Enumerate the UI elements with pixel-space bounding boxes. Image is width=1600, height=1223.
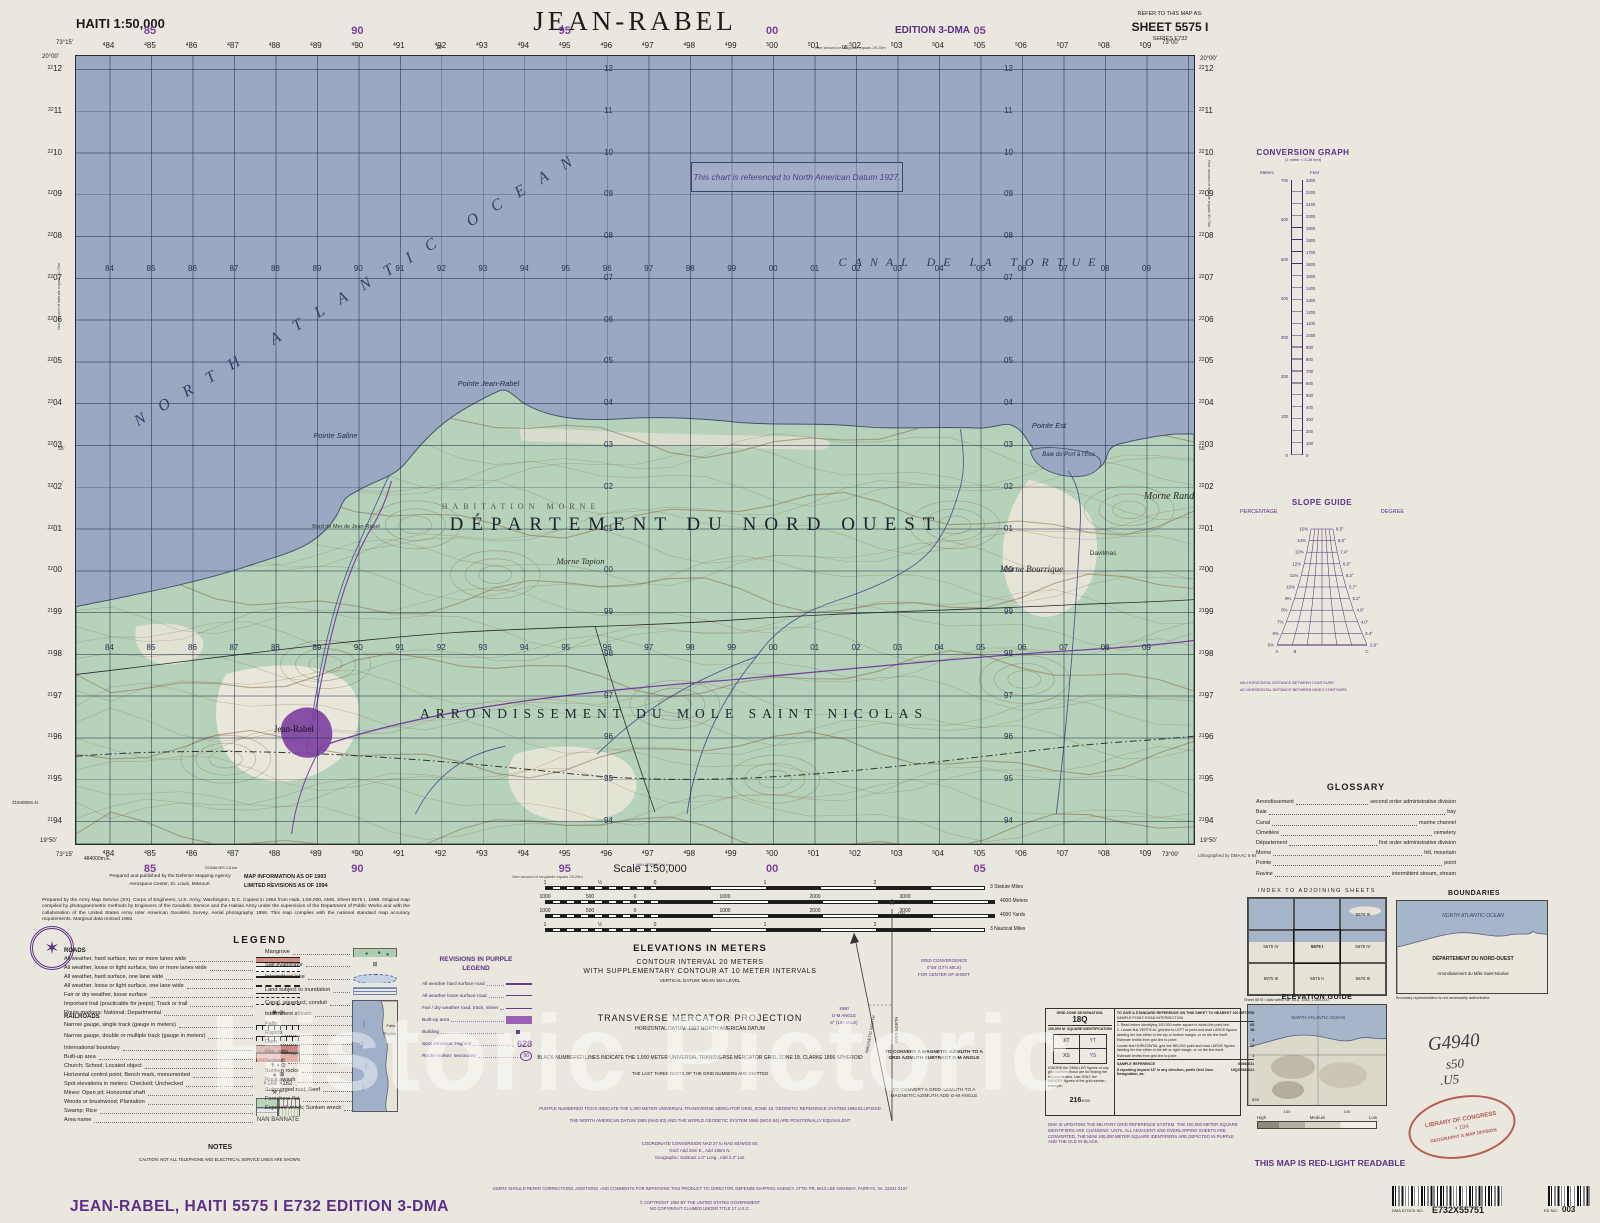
- decorative: Exposed wreck; Sunken wreck: [265, 1106, 341, 1112]
- decorative: 150 100: [1257, 1109, 1377, 1114]
- grid-interior-easting: 06: [1014, 643, 1030, 652]
- slope-figure: 15%8.5°14%8.0°13%7.4°12%6.8°11%6.3°10%5.…: [1240, 515, 1404, 678]
- generated-item: [293, 951, 350, 955]
- decorative: 7%: [1277, 619, 1283, 624]
- place-pointe-est: Pointe Est: [1004, 421, 1094, 430]
- index-grid: 5576 III5575 IV5575 I5675 IV5575 III5575…: [1247, 897, 1387, 996]
- conversion-feet-label: 1300: [1306, 298, 1315, 303]
- decorative: 00: [769, 41, 778, 50]
- copyright-1: © COPYRIGHT 1994 BY THE UNITED STATES GO…: [470, 1200, 930, 1205]
- grid-interior-easting: 05: [973, 264, 989, 273]
- decorative: 93: [479, 41, 488, 50]
- standard-reference-panel: TO GIVE A STANDARD REFERENCE ON THIS SHE…: [1115, 1009, 1257, 1115]
- grid-interior-easting: 91: [392, 643, 408, 652]
- decorative: Route marker: secondary: [422, 1054, 476, 1059]
- grid-interior-easting: 87: [226, 643, 242, 652]
- gm-angle-year: 1990: [812, 1006, 876, 1011]
- decorative: 96: [1205, 732, 1214, 741]
- index-sheet-cell: 5575 II: [1294, 963, 1340, 995]
- decorative: 98: [686, 849, 695, 858]
- grid-northing-label: 2196: [1199, 732, 1225, 741]
- purple-legend-item: Fair / dry weather road, track, street: [422, 1002, 532, 1014]
- decorative: 04: [53, 398, 62, 407]
- decorative: 06: [1018, 849, 1027, 858]
- decorative: [361, 1021, 367, 1091]
- grid-interior-northing: 02: [604, 482, 613, 491]
- index-title: INDEX TO ADJOINING SHEETS: [1244, 888, 1390, 894]
- credit-paragraph: Prepared by the Army Map Service (SX), C…: [42, 898, 410, 924]
- purple-legend-item: All weather hard surface road: [422, 978, 532, 990]
- gzd-value: 18Q: [1048, 1015, 1112, 1024]
- generated-item: SAMPLE REFERENCE: [1117, 1062, 1236, 1066]
- grid-easting-label: 492: [430, 41, 450, 50]
- decorative: Morne: [1256, 850, 1271, 856]
- glossary-rows: Arrondissementsecond order administrativ…: [1256, 795, 1456, 877]
- true-north-star-icon: ★: [888, 897, 896, 907]
- grid-interior-easting: 01: [807, 264, 823, 273]
- grid-interior-northing: 07: [604, 273, 613, 282]
- decorative: 4.6°: [1356, 608, 1364, 613]
- decorative: Sunken rocks: [265, 1069, 299, 1075]
- generated-item: [500, 1006, 504, 1010]
- place-baie: Baie du Port à l'Écu: [1026, 452, 1111, 459]
- grid-northing-label: 2197: [36, 691, 62, 700]
- grid-northing-label: 2202: [36, 482, 62, 491]
- grid-interior-northing: 95: [604, 774, 613, 783]
- edition-barcode: [1548, 1186, 1590, 1206]
- grid-easting-label: 491: [389, 41, 409, 50]
- grid-interior-easting: 91: [392, 264, 408, 273]
- conversion-feet-label: 100: [1306, 441, 1313, 446]
- grid-interior-northing: 08: [604, 231, 613, 240]
- decorative: 06: [1018, 41, 1027, 50]
- grid-interior-northing: 05: [1004, 356, 1013, 365]
- place-pointe-jean-rabel: Pointe Jean-Rabel: [416, 379, 561, 388]
- generated-item: Estimate tenths from grid line to point:: [1117, 1038, 1239, 1042]
- square-id-YT: YT: [1080, 1035, 1106, 1049]
- grid-easting-label: 488: [264, 41, 284, 50]
- decorative: 12%: [1292, 561, 1301, 566]
- grid-easting-label: 500: [762, 41, 782, 50]
- decorative: 95: [1205, 774, 1214, 783]
- decorative: 86: [188, 849, 197, 858]
- decorative: Rapids: [265, 1031, 282, 1037]
- decorative: All weather loose surface road: [422, 994, 487, 999]
- generated-item: [441, 1030, 504, 1034]
- decorative: 10: [53, 148, 62, 157]
- grid-northing-label: 2203: [1199, 440, 1225, 449]
- grid-easting-label: 487: [223, 849, 243, 858]
- legend-item: Area nameNAN BANNATE: [64, 1116, 300, 1125]
- library-stamp: LIBRARY OF CONGRESS • 194 GEOGRAPHY & MA…: [1403, 1087, 1520, 1167]
- grid-easting-label: 485: [140, 41, 160, 50]
- grid-easting-label: 509: [1136, 41, 1156, 50]
- conversion-right-unit: Feet: [1310, 170, 1319, 175]
- conversion-meters-label: 700: [1268, 178, 1288, 183]
- decorative: 04: [1205, 398, 1214, 407]
- generated-item: XS: [1240, 1023, 1254, 1027]
- grid-easting-label: 493: [472, 849, 492, 858]
- decorative: 99: [53, 607, 62, 616]
- conversion-meters-label: 400: [1268, 296, 1288, 301]
- grid-interior-easting: 03: [890, 643, 906, 652]
- square-id-XS: XS: [1054, 1049, 1080, 1063]
- decorative: Dam: [265, 1040, 277, 1046]
- decorative: 3.4°: [1365, 631, 1373, 636]
- grid-northing-label: 2203: [36, 440, 62, 449]
- grid-easting-label: 484: [99, 41, 119, 50]
- grid-interior-northing: 04: [1004, 398, 1013, 407]
- coord-conversion-grid: Grid: Add 25m E., Add 195m N.: [560, 1148, 840, 1153]
- decorative: 07: [1205, 273, 1214, 282]
- grid-interior-easting: 06: [1014, 264, 1030, 273]
- conversion-feet-label: 200: [1306, 429, 1313, 434]
- grid-convergence-3: FOR CENTER OF SHEET: [892, 972, 996, 977]
- decorative: Pier, jetty: [265, 1050, 288, 1056]
- decorative: Baie: [1256, 809, 1267, 815]
- elevation-band-labels: HighMediumLow: [1257, 1115, 1377, 1120]
- grid-easting-label: 503: [887, 41, 907, 50]
- legend-railroads-header: RAILROADS: [64, 1014, 100, 1020]
- grid-interior-northing: 99: [604, 607, 613, 616]
- grid-interior-easting: 08: [1097, 264, 1113, 273]
- ignore-note: IGNORE the SMALLER figures of any grid n…: [1048, 1066, 1112, 1088]
- grid-easting-label: 497: [638, 41, 658, 50]
- magnetic-north-arrow-icon: [850, 933, 859, 944]
- grid-northing-label: 2206: [36, 315, 62, 324]
- grid-easting-label: 494: [513, 849, 533, 858]
- coord-conversion-title: COORDINATE CONVERSION NAD 27 to NAD 83/W…: [560, 1141, 840, 1146]
- decorative: 05: [1205, 356, 1214, 365]
- decorative: 85: [147, 849, 156, 858]
- decorative: 94: [520, 849, 529, 858]
- elevation-guide-title: ELEVATION GUIDE: [1244, 994, 1390, 1001]
- generated-item: [208, 1035, 253, 1039]
- decorative: 04: [935, 41, 944, 50]
- grid-easting-label: 486: [181, 849, 201, 858]
- grid-easting-label: 496: [596, 41, 616, 50]
- grid-interior-easting: 08: [1097, 643, 1113, 652]
- grid-interior-northing: 00: [604, 565, 613, 574]
- grid-interior-easting: 93: [475, 264, 491, 273]
- decorative: 02: [1205, 482, 1214, 491]
- elevations-line-1: ELEVATIONS IN METERS: [520, 943, 880, 954]
- grid-purple-easting: 95: [553, 25, 577, 37]
- decorative: 8.0°: [1338, 538, 1346, 543]
- purple-legend-item: Built-up area: [422, 1014, 532, 1026]
- boundaries-caption: Boundary representation is not necessari…: [1396, 996, 1552, 1000]
- decorative: 01: [1205, 524, 1214, 533]
- grid-interior-easting: 95: [558, 643, 574, 652]
- decorative: Foreshore flat: [265, 1097, 300, 1103]
- decorative: 8%: [1281, 608, 1287, 613]
- generated-item: [94, 1119, 253, 1123]
- generated-item: [1272, 822, 1417, 826]
- grid-interior-northing: 95: [1004, 774, 1013, 783]
- decorative: Intermittent stream: [265, 1012, 312, 1018]
- decorative: 11: [54, 106, 62, 115]
- generated-item: [148, 1101, 253, 1105]
- grid-easting-label: 503: [887, 849, 907, 858]
- grid-interior-easting: 99: [724, 264, 740, 273]
- grid-interior-northing: 96: [1004, 732, 1013, 741]
- decorative: 07: [53, 273, 62, 282]
- decorative: Canal, aqueduct, conduit: [265, 1001, 327, 1007]
- decorative: 97: [645, 41, 654, 50]
- decorative: 01: [53, 524, 62, 533]
- grid-northing-label: 2196: [36, 732, 62, 741]
- purple-legend-item: Building: [422, 1026, 532, 1038]
- grid-easting-label: 500: [762, 849, 782, 858]
- square-id-YS: YS: [1080, 1049, 1106, 1063]
- decorative: Mines: Open pit; Horizontal shaft: [64, 1091, 145, 1097]
- grid-easting-label: 496: [596, 849, 616, 858]
- generated-item: [186, 1083, 253, 1087]
- gn-label: GN: [898, 911, 905, 916]
- dma-update-note: DMA IS UPDATING THE MILITARY GRID REFERE…: [1048, 1122, 1240, 1145]
- decorative: Important trail (practicable for jeeps);…: [64, 1002, 187, 1008]
- legend-rapids-label: Rapids: [384, 1031, 396, 1036]
- legend-title: LEGEND: [60, 935, 460, 946]
- sample-reference-row: SAMPLE REFERENCEXS984021: [1117, 1062, 1255, 1066]
- elevations-line-3: WITH SUPPLEMENTARY CONTOUR AT 10 METER I…: [520, 968, 880, 975]
- grid-easting-label: 505: [970, 849, 990, 858]
- decorative: [353, 1001, 398, 1112]
- generated-item: [210, 967, 253, 971]
- decorative: 01: [811, 41, 820, 50]
- decorative: Built-up area: [422, 1018, 449, 1023]
- decorative: 92: [437, 849, 446, 858]
- grid-interior-easting: 98: [682, 643, 698, 652]
- conversion-feet-label: 2300: [1306, 178, 1315, 183]
- reference-step: 1. Read letters identifying 100,000 mete…: [1117, 1023, 1255, 1027]
- edition-label-small: ED NO.: [1544, 1208, 1558, 1213]
- grid-northing-label: 2206: [1199, 315, 1225, 324]
- decorative: Arrondissement: [1256, 799, 1294, 805]
- decorative: Land subject to inundation: [265, 988, 330, 994]
- grid-easting-label: 504: [928, 849, 948, 858]
- decorative: 2164000: [1048, 1089, 1112, 1107]
- grid-northing-label: 2205: [1199, 356, 1225, 365]
- canal-name-label: CANAL DE LA TORTUE: [826, 255, 1116, 270]
- place-davilmas: Davilmas: [1068, 550, 1138, 557]
- grid-purple-easting: 00: [760, 25, 784, 37]
- decorative: intermittent stream, stream: [1392, 871, 1456, 877]
- decorative: Narrow gauge, single track (gauge in met…: [64, 1023, 176, 1029]
- legend-item: Mangrove: [265, 948, 397, 957]
- elevation-gradient-bar: [1257, 1121, 1377, 1129]
- grid-interior-northing: 94: [1004, 816, 1013, 825]
- decorative: 4.0°: [1361, 619, 1369, 624]
- square-id-label: 100,000 M. SQUARE IDENTIFICATION: [1048, 1025, 1112, 1031]
- generated-item: [1273, 852, 1422, 856]
- decorative: 11%: [1290, 573, 1299, 578]
- edition-label: EDITION 3-DMA: [895, 25, 970, 36]
- grid-interior-easting: 86: [184, 264, 200, 273]
- grid-interior-easting: 86: [184, 643, 200, 652]
- grid-easting-label: 490: [347, 849, 367, 858]
- decorative: 5.7°: [1349, 585, 1357, 590]
- conversion-feet-label: 1700: [1306, 250, 1315, 255]
- arrondissement-label: ARRONDISSEMENT DU MOLE SAINT NICOLAS: [344, 706, 1004, 722]
- conversion-feet-label: 1500: [1306, 274, 1315, 279]
- purple-legend-list: All weather hard surface roadAll weather…: [422, 978, 532, 1062]
- publisher-line-2: Aerospace Center, St. Louis, Missouri.: [90, 882, 250, 887]
- conversion-feet-label: 600: [1306, 381, 1313, 386]
- decorative: point: [1444, 860, 1456, 866]
- index-sheet-cell: [1294, 898, 1340, 930]
- decorative: Pointe: [1256, 860, 1271, 866]
- generated-item: [487, 982, 504, 986]
- decorative: Area name: [64, 1118, 91, 1124]
- grid-interior-northing: 96: [604, 732, 613, 741]
- grid-easting-label: 502: [845, 849, 865, 858]
- elevation-tick-150: 150: [1284, 1109, 1291, 1114]
- grid-interior-northing: 09: [1004, 189, 1013, 198]
- glossary-title: GLOSSARY: [1256, 782, 1456, 792]
- conversion-feet-label: 1200: [1306, 310, 1315, 315]
- grid-interior-northing: 10: [1004, 148, 1013, 157]
- decorative: 00: [53, 565, 62, 574]
- grid-northing-label: 2209: [36, 189, 62, 198]
- generated-item: [148, 1092, 253, 1096]
- refer-label: REFER TO THIS MAP AS:: [1110, 11, 1230, 17]
- conversion-feet-label: 0: [1306, 453, 1308, 458]
- generated-item: [330, 1002, 350, 1006]
- decorative: 08: [1101, 41, 1110, 50]
- index-sheet-cell: 5575 III: [1248, 963, 1294, 995]
- grid-purple-easting: 05: [968, 25, 992, 37]
- decorative: Falls: [265, 1022, 277, 1028]
- corner-tr-lat: 20°00': [1200, 56, 1217, 62]
- grid-interior-northing: 05: [604, 356, 613, 365]
- grid-interior-easting: 88: [267, 264, 283, 273]
- decorative: 99: [728, 41, 737, 50]
- decorative: 07: [1059, 41, 1068, 50]
- grid-interior-easting: 07: [1056, 643, 1072, 652]
- conversion-meters-label: 500: [1268, 257, 1288, 262]
- decorative: 08: [1101, 849, 1110, 858]
- conversion-feet-label: 400: [1306, 405, 1313, 410]
- grid-northing-label: 2212: [1199, 64, 1225, 73]
- decorative: 96: [53, 732, 62, 741]
- generated-item: 1: [1240, 1054, 1254, 1058]
- conversion-feet-label: 1400: [1306, 286, 1315, 291]
- decorative: 02: [852, 41, 861, 50]
- conversion-feet-label: 500: [1306, 393, 1313, 398]
- grid-easting-label: 508: [1094, 41, 1114, 50]
- grid-interior-northing: 09: [604, 189, 613, 198]
- legend-item: Land subject to inundation: [265, 986, 397, 995]
- projection-line-2: HORIZONTAL DATUM: 1927 NORTH AMERICAN DA…: [520, 1026, 880, 1032]
- decorative: Cimetière: [1256, 830, 1279, 836]
- boundaries-title: BOUNDARIES: [1396, 890, 1552, 897]
- decorative: Woods or brushwood; Plantation: [64, 1100, 145, 1106]
- scale-bars: 1½0123 Statute Miles10005000100020003000…: [520, 880, 1080, 938]
- grid-interior-northing: 99: [1004, 607, 1013, 616]
- grid-interior-easting: 99: [724, 643, 740, 652]
- grid-interior-northing: 03: [604, 440, 613, 449]
- decorative: 04: [935, 849, 944, 858]
- decorative: Intermittent lake: [265, 975, 305, 981]
- grid-zone-panel: GRID ZONE DESIGNATION: 18Q 100,000 M. SQ…: [1046, 1009, 1115, 1115]
- decorative: 00: [769, 849, 778, 858]
- slope-title: SLOPE GUIDE: [1240, 498, 1404, 507]
- grid-northing-label: 2212: [36, 64, 62, 73]
- decorative: All weather, hard surface, two or more l…: [64, 957, 186, 963]
- edition-value: 003: [1562, 1205, 1575, 1214]
- grid-purple-easting: 85: [138, 25, 162, 37]
- grid-interior-northing: 04: [604, 398, 613, 407]
- grid-interior-easting: 96: [599, 264, 615, 273]
- generated-item: [489, 994, 504, 998]
- index-sheet-cell: 5675 IV: [1340, 930, 1386, 962]
- grid-easting-label: 486: [181, 41, 201, 50]
- sheet-number: SHEET 5575 I: [1110, 20, 1230, 34]
- grid-easting-label: 490: [347, 41, 367, 50]
- decorative: 02: [852, 849, 861, 858]
- elevations-line-2: CONTOUR INTERVAL 20 METERS: [520, 959, 880, 966]
- conversion-meters-label: 200: [1268, 374, 1288, 379]
- grid-easting-label: 487: [223, 41, 243, 50]
- decorative: Horizontal control point; Bench mark, mo…: [64, 1073, 190, 1079]
- map-sheet: HAITI 1:50,000 JEAN-RABEL EDITION 3-DMA …: [0, 0, 1600, 1223]
- decorative: 90: [354, 849, 363, 858]
- decorative: 12: [1205, 64, 1214, 73]
- purple-legend-item: All weather loose surface road: [422, 990, 532, 1002]
- grid-interior-easting: 85: [143, 264, 159, 273]
- decorative: Fair / dry weather road, track, street: [422, 1006, 498, 1011]
- decorative: hill, mountain: [1424, 850, 1456, 856]
- decorative: [1272, 1081, 1304, 1099]
- generated-item: [1275, 873, 1390, 877]
- corner-tr-lon: 73°00': [1162, 40, 1179, 46]
- grid-interior-easting: 89: [309, 264, 325, 273]
- users-note: USERS SHOULD REFER CORRECTIONS, ADDITION…: [470, 1186, 930, 1192]
- decorative: All weather, loose or light surface, two…: [64, 966, 207, 972]
- conversion-meters-label: 600: [1268, 217, 1288, 222]
- generated-item: [1273, 862, 1442, 866]
- red-light-note: THIS MAP IS RED-LIGHT READABLE: [1250, 1158, 1410, 1168]
- grid-interior-easting: 92: [433, 643, 449, 652]
- grid-easting-label: 502: [845, 41, 865, 50]
- grid-interior-northing: 97: [1004, 691, 1013, 700]
- grid-northing-label: 2210: [36, 148, 62, 157]
- grid-northing-label: 2201: [36, 524, 62, 533]
- grid-northing-label: 2200: [36, 565, 62, 574]
- grid-easting-label: 489: [306, 41, 326, 50]
- decorative: Canal: [1256, 820, 1270, 826]
- decorative: 13%: [1295, 550, 1304, 555]
- grid-northing-label: 2207: [36, 273, 62, 282]
- decorative: 8.5°: [1336, 527, 1344, 532]
- grid-interior-northing: 12: [604, 64, 613, 73]
- generated-item: [123, 1047, 253, 1051]
- map-image: NORTH ATLANTIC OCEAN CANAL DE LA TORTUE …: [75, 55, 1195, 845]
- decorative: 87: [230, 41, 239, 50]
- decorative: All weather, loose or light surface, one…: [64, 984, 184, 990]
- conversion-subtitle: (1 meter = 3.28 feet): [1238, 157, 1368, 162]
- grid-interior-easting: 05: [973, 643, 989, 652]
- grid-easting-label: 485: [140, 849, 160, 858]
- decorative: 07: [1059, 849, 1068, 858]
- grid-interior-easting: 07: [1056, 264, 1072, 273]
- decorative: Spot elevations in meters: Checked; Unch…: [64, 1082, 183, 1088]
- boundaries: BOUNDARIES NORTH ATLANTIC OCEAN DÉPARTEM…: [1396, 890, 1552, 1000]
- decorative: . 628: [512, 1039, 532, 1049]
- footer-sheet-title: JEAN-RABEL, HAITI 5575 I E732 EDITION 3-…: [70, 1198, 449, 1216]
- convert-to-grid-note: TO CONVERT A MAGNETIC AZIMUTH TO A GRID …: [884, 1050, 984, 1063]
